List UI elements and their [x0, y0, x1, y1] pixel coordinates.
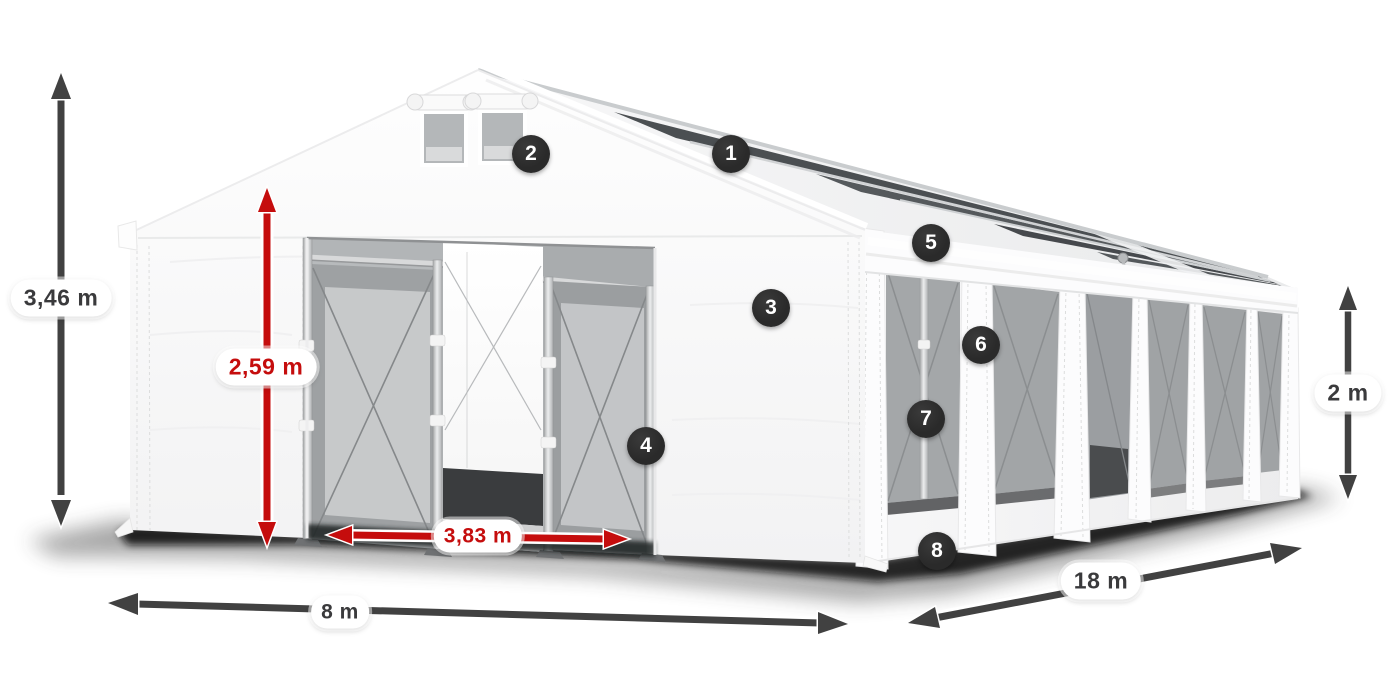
callout-badge-4: 4: [627, 427, 665, 465]
callout-badge-5: 5: [912, 224, 950, 262]
callout-badge-7: 7: [907, 400, 945, 438]
dimension-label-entrance-width: 3,83 m: [434, 520, 522, 553]
dimension-label-entrance-height: 2,59 m: [216, 349, 317, 386]
side-window: [886, 271, 960, 515]
inner-frame-post: [920, 277, 928, 499]
sliding-door-panel: [549, 281, 651, 553]
side-recessed-bay: [1085, 291, 1133, 500]
dimension-label-width: 8 m: [311, 596, 369, 629]
side-window: [1147, 298, 1190, 498]
side-window: [1257, 311, 1283, 473]
width-arrow: [108, 593, 848, 634]
dimension-label-side-height: 2 m: [1314, 375, 1381, 412]
product-dimension-diagram: 3,46 m 2,59 m 3,83 m 8 m 18 m 2 m 1 2 3 …: [0, 0, 1400, 700]
callout-badge-3: 3: [752, 289, 790, 327]
dimension-label-length: 18 m: [1061, 563, 1141, 600]
callout-badge-1: 1: [712, 135, 750, 173]
entrance-opening: [294, 238, 666, 562]
callout-badge-8: 8: [918, 532, 956, 570]
side-window: [992, 284, 1060, 505]
tent-illustration: [0, 0, 1400, 700]
dimension-label-total-height: 3,46 m: [11, 280, 112, 317]
callout-badge-2: 2: [512, 135, 550, 173]
side-window: [1202, 305, 1247, 489]
callout-badge-6: 6: [962, 326, 1000, 364]
sliding-door-panel: [311, 264, 437, 549]
eave-overhang: [118, 221, 137, 250]
interior-floor-shadow: [443, 468, 543, 526]
